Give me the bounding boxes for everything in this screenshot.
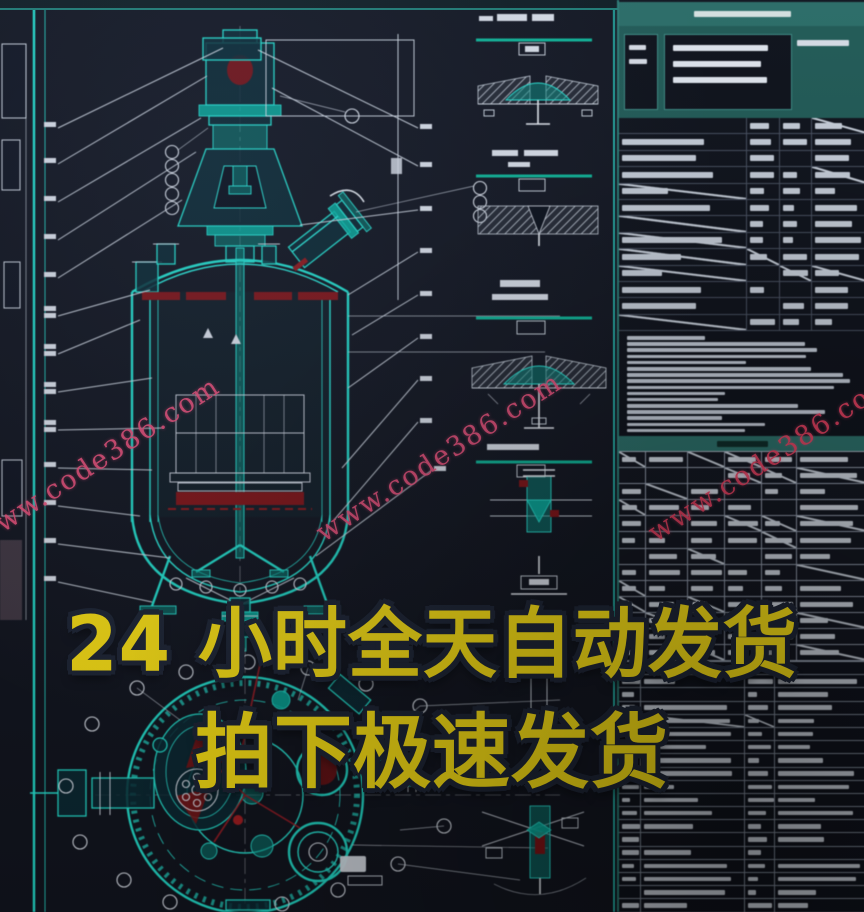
title-block	[619, 26, 864, 119]
promo-text-line-2: 拍下极速发货	[195, 688, 669, 804]
cad-product-screenshot: www.code386.com www.code386.com www.code…	[0, 0, 864, 912]
title-block-text-lines	[664, 34, 792, 110]
left-margin-strip	[0, 0, 45, 912]
promo-text-line-1: 24 小时全天自动发货	[66, 582, 798, 693]
drawing-header-band	[619, 2, 864, 27]
title-block-right-line	[797, 34, 861, 60]
technical-characteristics-table	[619, 118, 864, 333]
title-block-mark-cell	[624, 34, 658, 110]
